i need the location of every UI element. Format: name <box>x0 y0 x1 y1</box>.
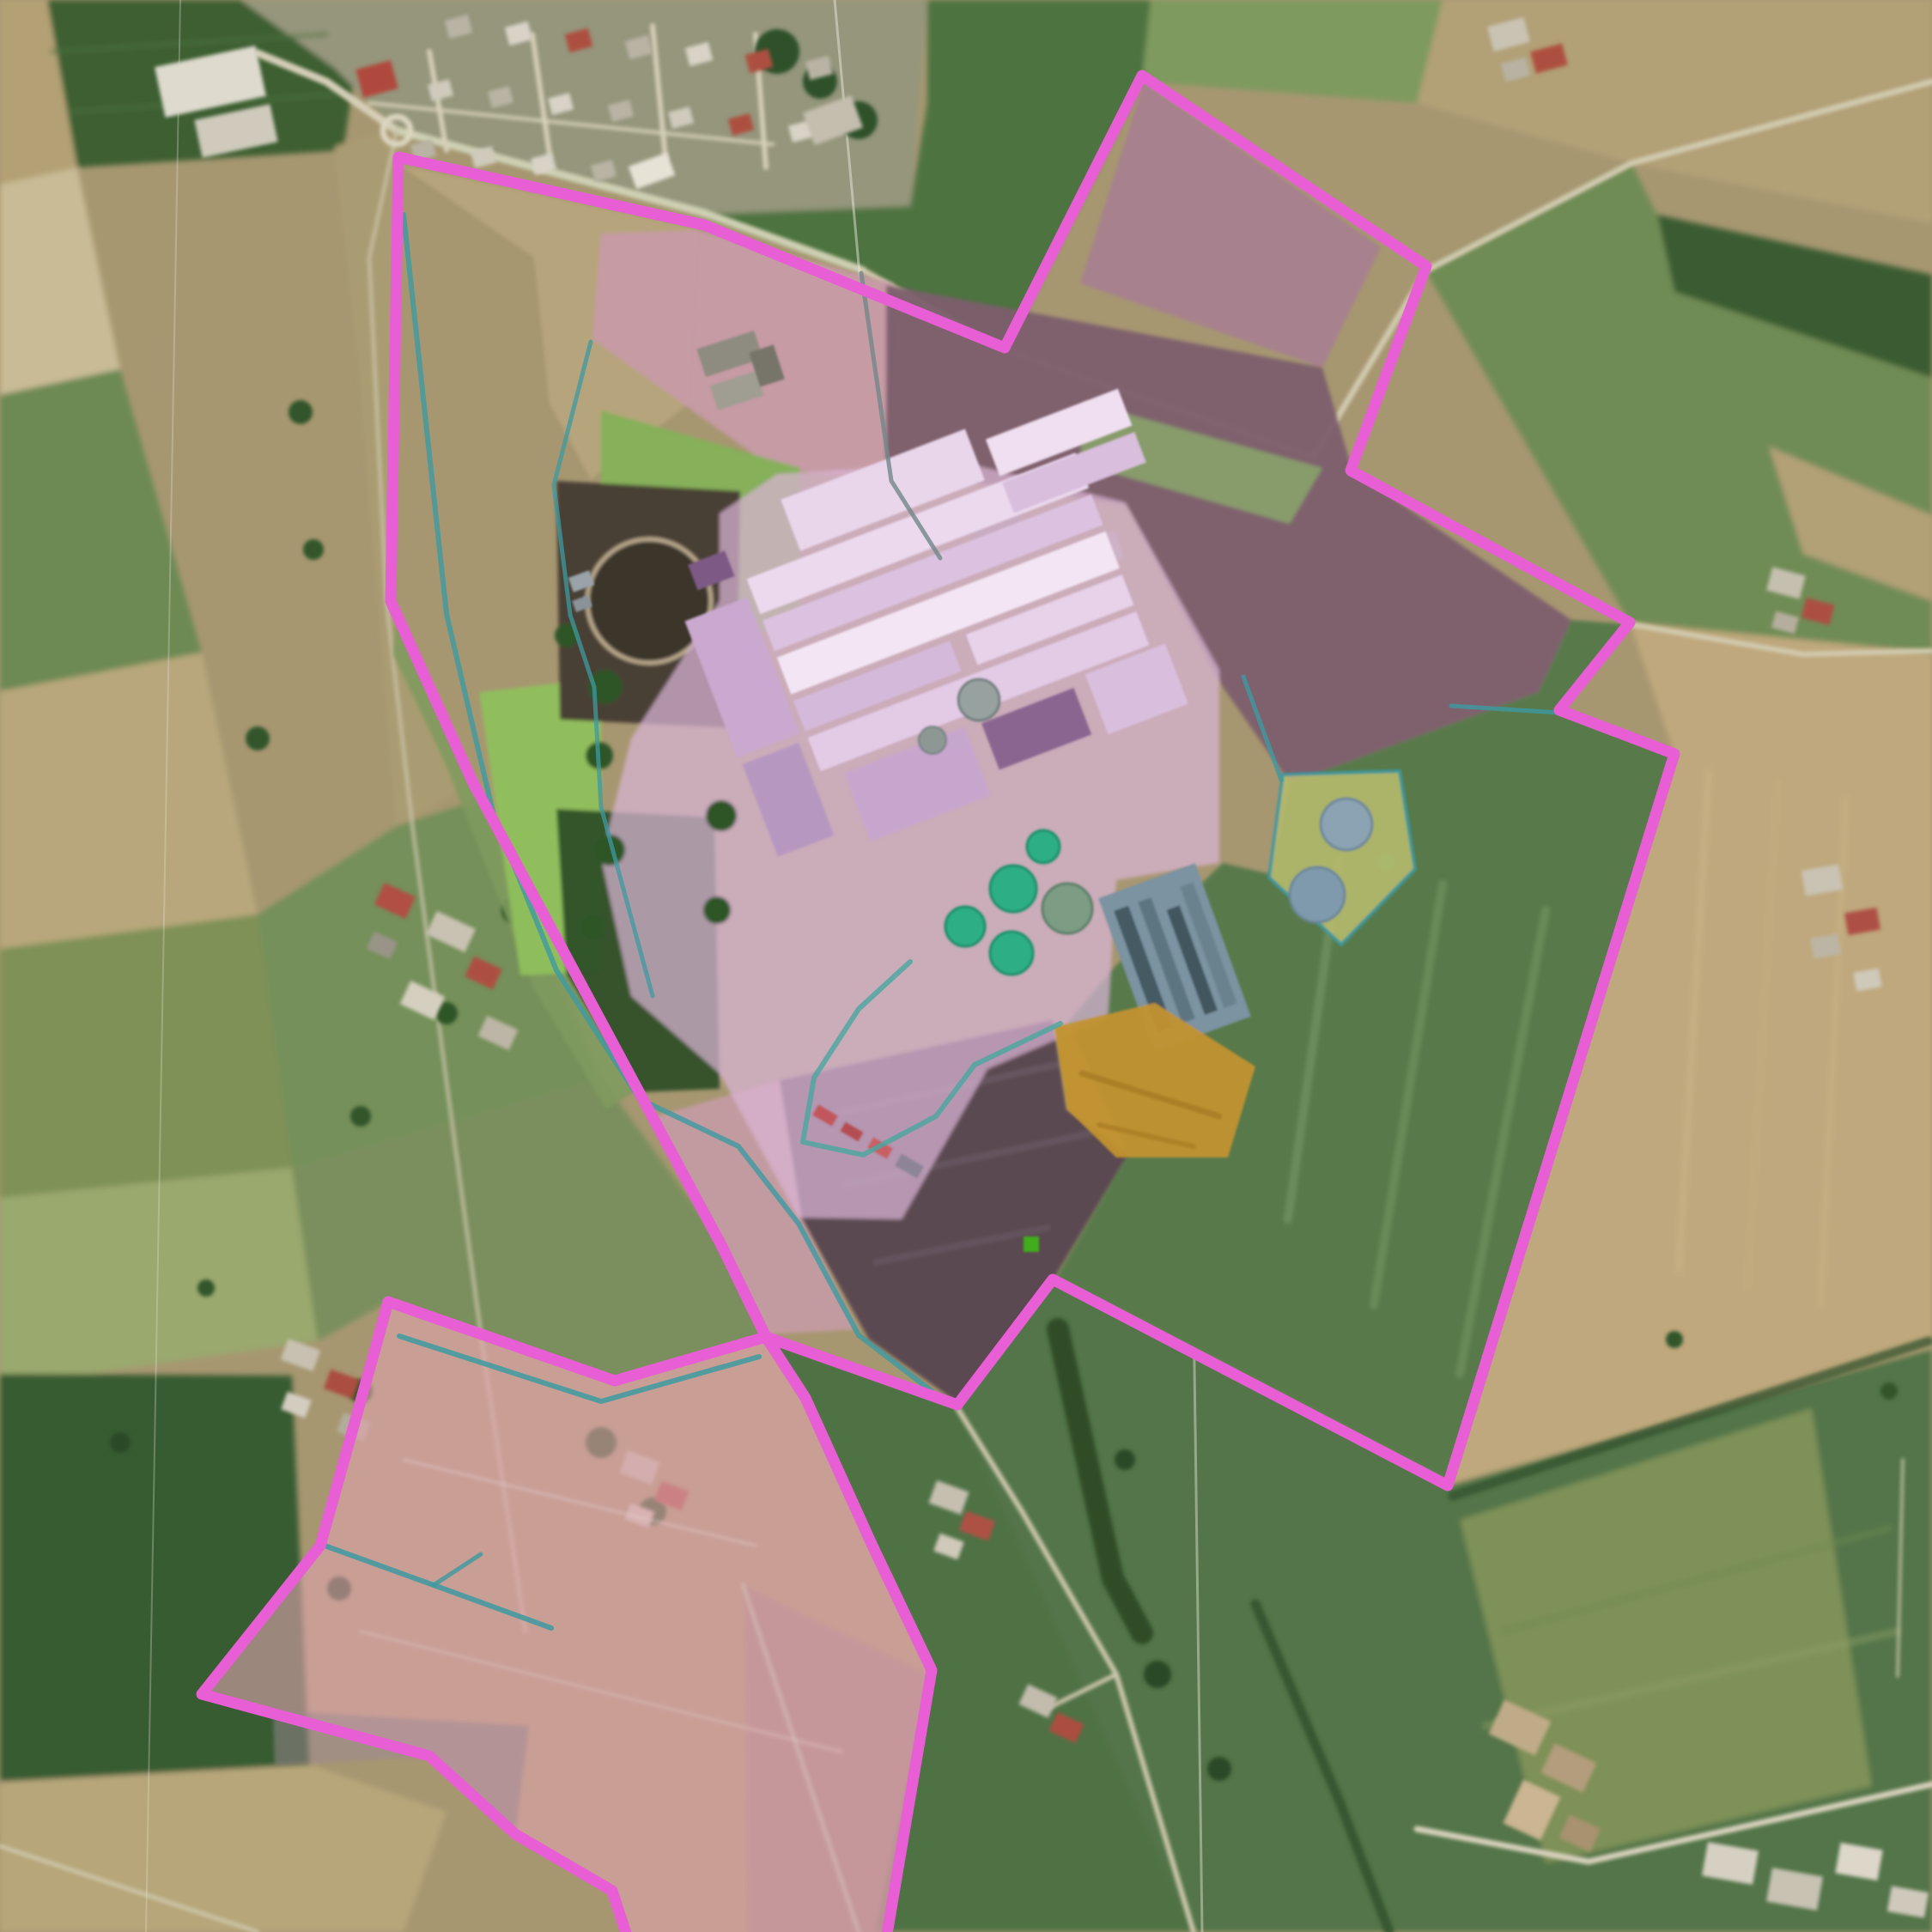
satellite-map-canvas[interactable] <box>0 0 1932 1932</box>
map-viewport[interactable] <box>0 0 1932 1932</box>
map-layers <box>0 0 1932 1932</box>
